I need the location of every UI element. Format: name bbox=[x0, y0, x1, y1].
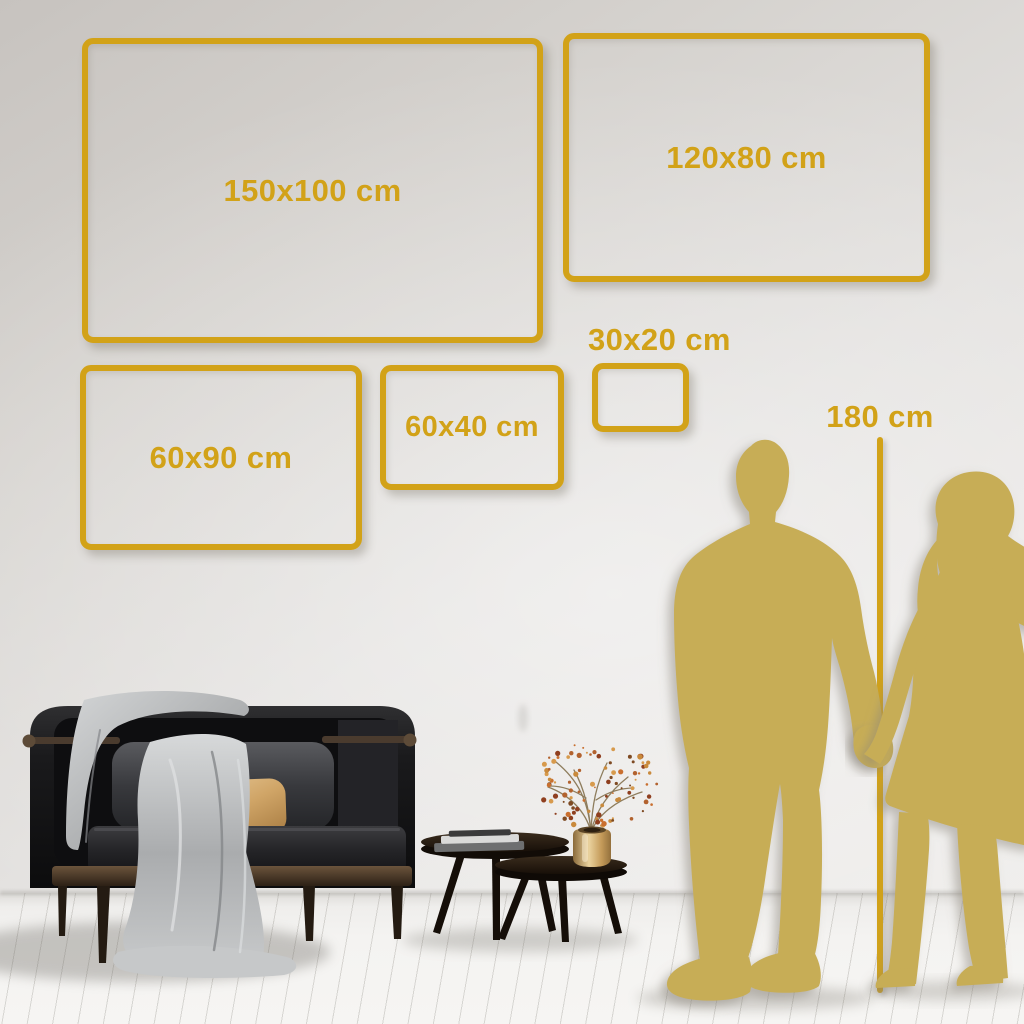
wall-art-size-guide: 150x100 cm 120x80 cm 60x90 cm 60x40 cm 3… bbox=[0, 0, 1024, 1024]
size-frame-30x20 bbox=[592, 363, 689, 432]
floor bbox=[0, 893, 1024, 1024]
size-label-120x80: 120x80 cm bbox=[666, 140, 826, 176]
size-frame-120x80: 120x80 cm bbox=[563, 33, 930, 282]
size-label-30x20: 30x20 cm bbox=[588, 322, 731, 358]
height-label: 180 cm bbox=[790, 399, 970, 435]
wall-floor-junction bbox=[0, 891, 1024, 895]
size-frame-60x90: 60x90 cm bbox=[80, 365, 362, 550]
height-line bbox=[877, 437, 883, 993]
size-frame-60x40: 60x40 cm bbox=[380, 365, 564, 490]
size-label-60x90: 60x90 cm bbox=[150, 440, 293, 476]
size-label-60x40: 60x40 cm bbox=[405, 411, 539, 444]
size-frame-150x100: 150x100 cm bbox=[82, 38, 543, 343]
size-label-150x100: 150x100 cm bbox=[223, 173, 401, 209]
